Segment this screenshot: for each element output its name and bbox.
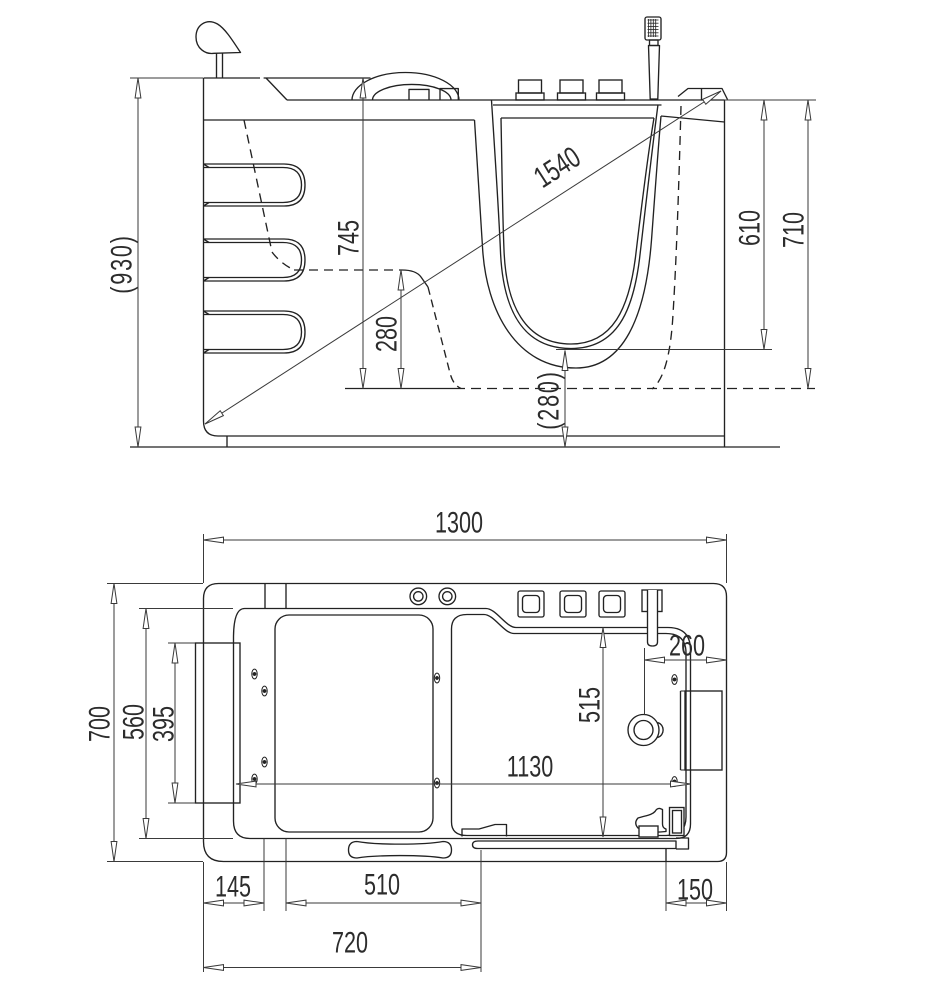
- svg-text:610: 610: [732, 210, 766, 246]
- svg-text:510: 510: [364, 867, 400, 901]
- svg-text:515: 515: [572, 687, 606, 723]
- svg-text:280: 280: [369, 316, 403, 352]
- svg-text:260: 260: [669, 628, 705, 662]
- svg-text:1300: 1300: [435, 505, 483, 539]
- svg-text:700: 700: [82, 706, 116, 742]
- svg-text:(280): (280): [531, 370, 565, 429]
- svg-text:720: 720: [332, 925, 368, 959]
- svg-text:(930): (930): [104, 234, 138, 293]
- svg-text:150: 150: [677, 872, 713, 906]
- svg-text:710: 710: [776, 212, 810, 248]
- svg-text:745: 745: [331, 220, 365, 256]
- svg-text:145: 145: [215, 869, 251, 903]
- svg-text:395: 395: [146, 706, 180, 742]
- svg-text:1130: 1130: [507, 749, 553, 783]
